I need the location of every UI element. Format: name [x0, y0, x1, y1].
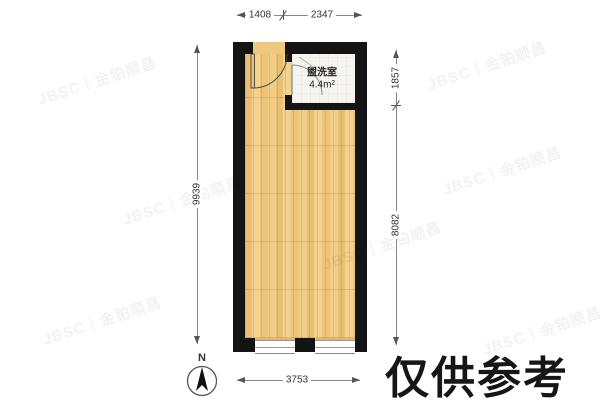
window: [315, 340, 355, 354]
brand-watermark: JBSC｜金铂顺昌: [35, 51, 159, 109]
wall-segment: [295, 338, 315, 352]
dim-arrow: [237, 377, 245, 383]
washroom-name: 盥洗室: [307, 64, 337, 79]
wall-segment: [285, 42, 367, 54]
dim-top-2: 2347: [308, 10, 336, 21]
dim-arrow: [237, 12, 245, 18]
dim-arrow: [354, 12, 362, 18]
washroom-floor: [292, 54, 355, 103]
wall-segment: [355, 42, 367, 352]
brand-watermark: JBSC｜金铂顺昌: [40, 291, 164, 349]
compass-circle: [188, 367, 217, 396]
north-label: N: [198, 352, 206, 364]
washroom-wall-segment: [285, 54, 292, 62]
entrance-doorway: [253, 42, 285, 54]
wall-segment: [233, 338, 255, 352]
wall-segment: [355, 338, 367, 352]
dim-right-2: 8082: [391, 211, 402, 239]
reference-only-watermark: 仅供参考: [385, 342, 569, 400]
dim-right-1: 1857: [391, 64, 402, 92]
dim-top-1: 1408: [246, 10, 274, 21]
brand-watermark: JBSC｜金铂顺昌: [440, 141, 564, 199]
window-mullion: [255, 347, 295, 348]
dim-bottom: 3753: [283, 375, 311, 386]
washroom-area: 4.4m²: [309, 80, 335, 91]
window: [255, 340, 295, 354]
wall-segment: [233, 42, 253, 54]
wall-segment: [233, 42, 245, 352]
compass-needle-icon: [196, 367, 208, 391]
washroom-wall-segment: [285, 103, 355, 110]
dim-arrow: [352, 377, 360, 383]
dim-arrow: [194, 336, 200, 344]
dim-arrow: [393, 50, 399, 58]
floorplan-canvas: JBSC｜金铂顺昌 JBSC｜金铂顺昌 JBSC｜金铂顺昌 JBSC｜金铂顺昌 …: [0, 0, 600, 400]
dim-left: 9939: [192, 180, 203, 208]
dim-arrow: [194, 45, 200, 53]
brand-watermark: JBSC｜金铂顺昌: [425, 36, 549, 94]
window-mullion: [315, 347, 355, 348]
dimension-line-right: [396, 50, 397, 345]
brand-watermark: JBSC｜金铂顺昌: [120, 171, 244, 229]
